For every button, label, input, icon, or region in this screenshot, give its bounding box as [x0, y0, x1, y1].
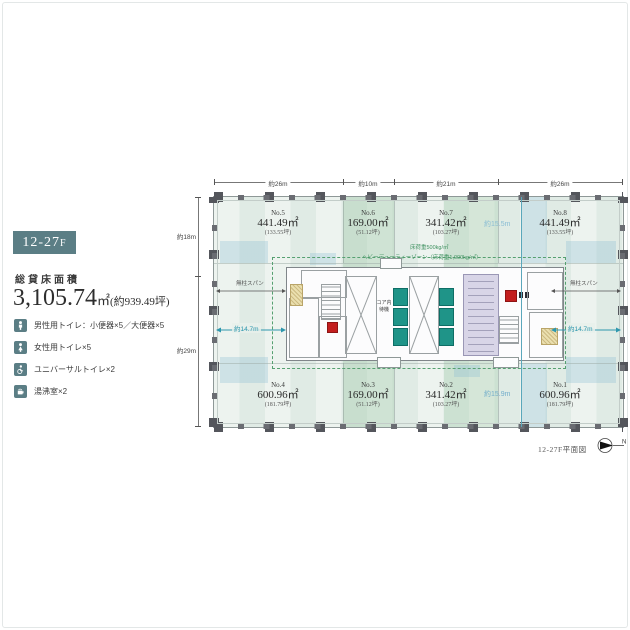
dim-left-18m: 約18m — [168, 231, 196, 241]
depth-right-label: 約14.7m — [566, 323, 595, 333]
north-arrow-icon: N — [596, 437, 628, 454]
dim-tick — [394, 179, 395, 185]
dim-tick — [343, 179, 344, 185]
dimension-line-left — [198, 197, 199, 427]
span-arrow-left — [215, 287, 287, 295]
span-arrow-right — [550, 287, 622, 295]
facility-label: 湯沸室×2 — [34, 386, 67, 397]
floor-badge-number: 12-27 — [22, 235, 60, 250]
plan-caption: 12-27F平面図 — [538, 444, 587, 455]
core-label: コア内 待機 — [376, 300, 392, 313]
room-label-no1: No.1 600.96㎡ (181.79坪) — [515, 381, 605, 409]
elevator-car — [439, 308, 454, 326]
fire-hydrant-box — [505, 290, 517, 302]
floor-badge: 12-27F — [13, 231, 76, 254]
facility-label: 男性用トイレ：小便器×5／大便器×5 — [34, 320, 164, 331]
blue-zone — [220, 357, 268, 383]
kitchenette-room — [290, 284, 303, 306]
blue-zone — [566, 357, 616, 383]
total-area-label: 総貸床面積 — [15, 271, 80, 286]
depth-bottom-label: 約15.9m — [484, 389, 510, 399]
facility-label: 女性用トイレ×5 — [34, 342, 91, 353]
dim-left-29m: 約29m — [168, 345, 196, 355]
core-label-line2: 待機 — [376, 307, 392, 314]
building-core: コア内 待機 — [286, 267, 564, 361]
room-label-no7: No.7 341.42㎡ (103.27坪) — [401, 209, 491, 237]
elevator-car — [439, 328, 454, 346]
restroom-block — [463, 274, 499, 356]
core-bump — [377, 357, 401, 368]
elevator-shaft — [345, 276, 377, 354]
floor-load-note: 床荷重500kg/㎡ — [410, 243, 449, 251]
elevator-shaft — [409, 276, 439, 354]
facility-row-male: 男性用トイレ：小便器×5／大便器×5 — [14, 318, 164, 332]
room-label-no6: No.6 169.00㎡ (51.12坪) — [323, 209, 413, 237]
elevator-car — [393, 328, 408, 346]
stairs-right — [499, 316, 519, 344]
elevator-car — [393, 308, 408, 326]
dim-tick — [195, 197, 201, 198]
core-bump — [493, 357, 519, 368]
universal-restroom-icon — [14, 363, 27, 376]
dim-tick — [195, 426, 201, 427]
dim-top-10m: 約10m — [355, 178, 380, 188]
core-label-line1: コア内 — [376, 300, 392, 307]
room-label-no8: No.8 441.49㎡ (133.55坪) — [515, 209, 605, 237]
total-area-value: 3,105.74 — [13, 285, 97, 311]
facility-label: ユニバーサルトイレ×2 — [34, 364, 115, 375]
core-room-outline — [289, 298, 319, 358]
total-area-tsubo: (約939.49坪) — [110, 296, 170, 308]
dim-top-21m: 約21m — [433, 178, 458, 188]
elevator-car — [393, 288, 408, 306]
mullions-left — [212, 205, 217, 419]
kitchenette-icon — [14, 385, 27, 398]
depth-dimension-line — [521, 197, 522, 427]
blue-zone — [220, 241, 268, 263]
room-label-no3: No.3 169.00㎡ (51.12坪) — [323, 381, 413, 409]
page: { "page": { "caption": "12-27F平面図", "nor… — [0, 0, 630, 630]
span-note-left: 無柱スパン — [236, 279, 264, 287]
stairs-left — [321, 284, 341, 320]
facility-row-kitchenette: 湯沸室×2 — [14, 384, 67, 398]
elevator-car — [439, 288, 454, 306]
room-label-no5: No.5 441.49㎡ (133.55坪) — [233, 209, 323, 237]
mullions-bottom — [220, 424, 617, 429]
floor-badge-suffix: F — [60, 238, 67, 249]
dim-top-26m-2: 約26m — [547, 178, 572, 188]
restroom-stalls — [468, 278, 494, 352]
mullions-top — [220, 195, 617, 200]
floor-plan: 床荷重500kg/㎡ ヘビーデューティーゾーン（床荷重1,000kg/㎡） コア… — [213, 196, 624, 428]
depth-left-label: 約14.7m — [232, 323, 261, 333]
dim-tick — [498, 179, 499, 185]
female-restroom-icon — [14, 341, 27, 354]
room-label-no4: No.4 600.96㎡ (181.79坪) — [233, 381, 323, 409]
dim-tick — [622, 179, 623, 185]
core-bump — [380, 258, 402, 269]
male-restroom-icon — [14, 319, 27, 332]
dim-tick — [214, 179, 215, 185]
depth-top-label: 約15.5m — [484, 219, 510, 229]
total-area-unit: ㎡ — [97, 293, 110, 308]
total-area-value-line: 3,105.74㎡(約939.49坪) — [13, 285, 170, 312]
fire-hydrant-box — [327, 322, 338, 333]
room-label-no2: No.2 341.42㎡ (103.27坪) — [401, 381, 491, 409]
mullions-right — [620, 205, 625, 419]
blue-zone — [566, 241, 616, 263]
room-divider — [498, 197, 499, 263]
dim-tick — [195, 276, 201, 277]
svg-text:N: N — [622, 440, 626, 446]
span-note-right: 無柱スパン — [570, 279, 598, 287]
facility-row-universal: ユニバーサルトイレ×2 — [14, 362, 115, 376]
facility-row-female: 女性用トイレ×5 — [14, 340, 91, 354]
dim-top-26m: 約26m — [265, 178, 290, 188]
